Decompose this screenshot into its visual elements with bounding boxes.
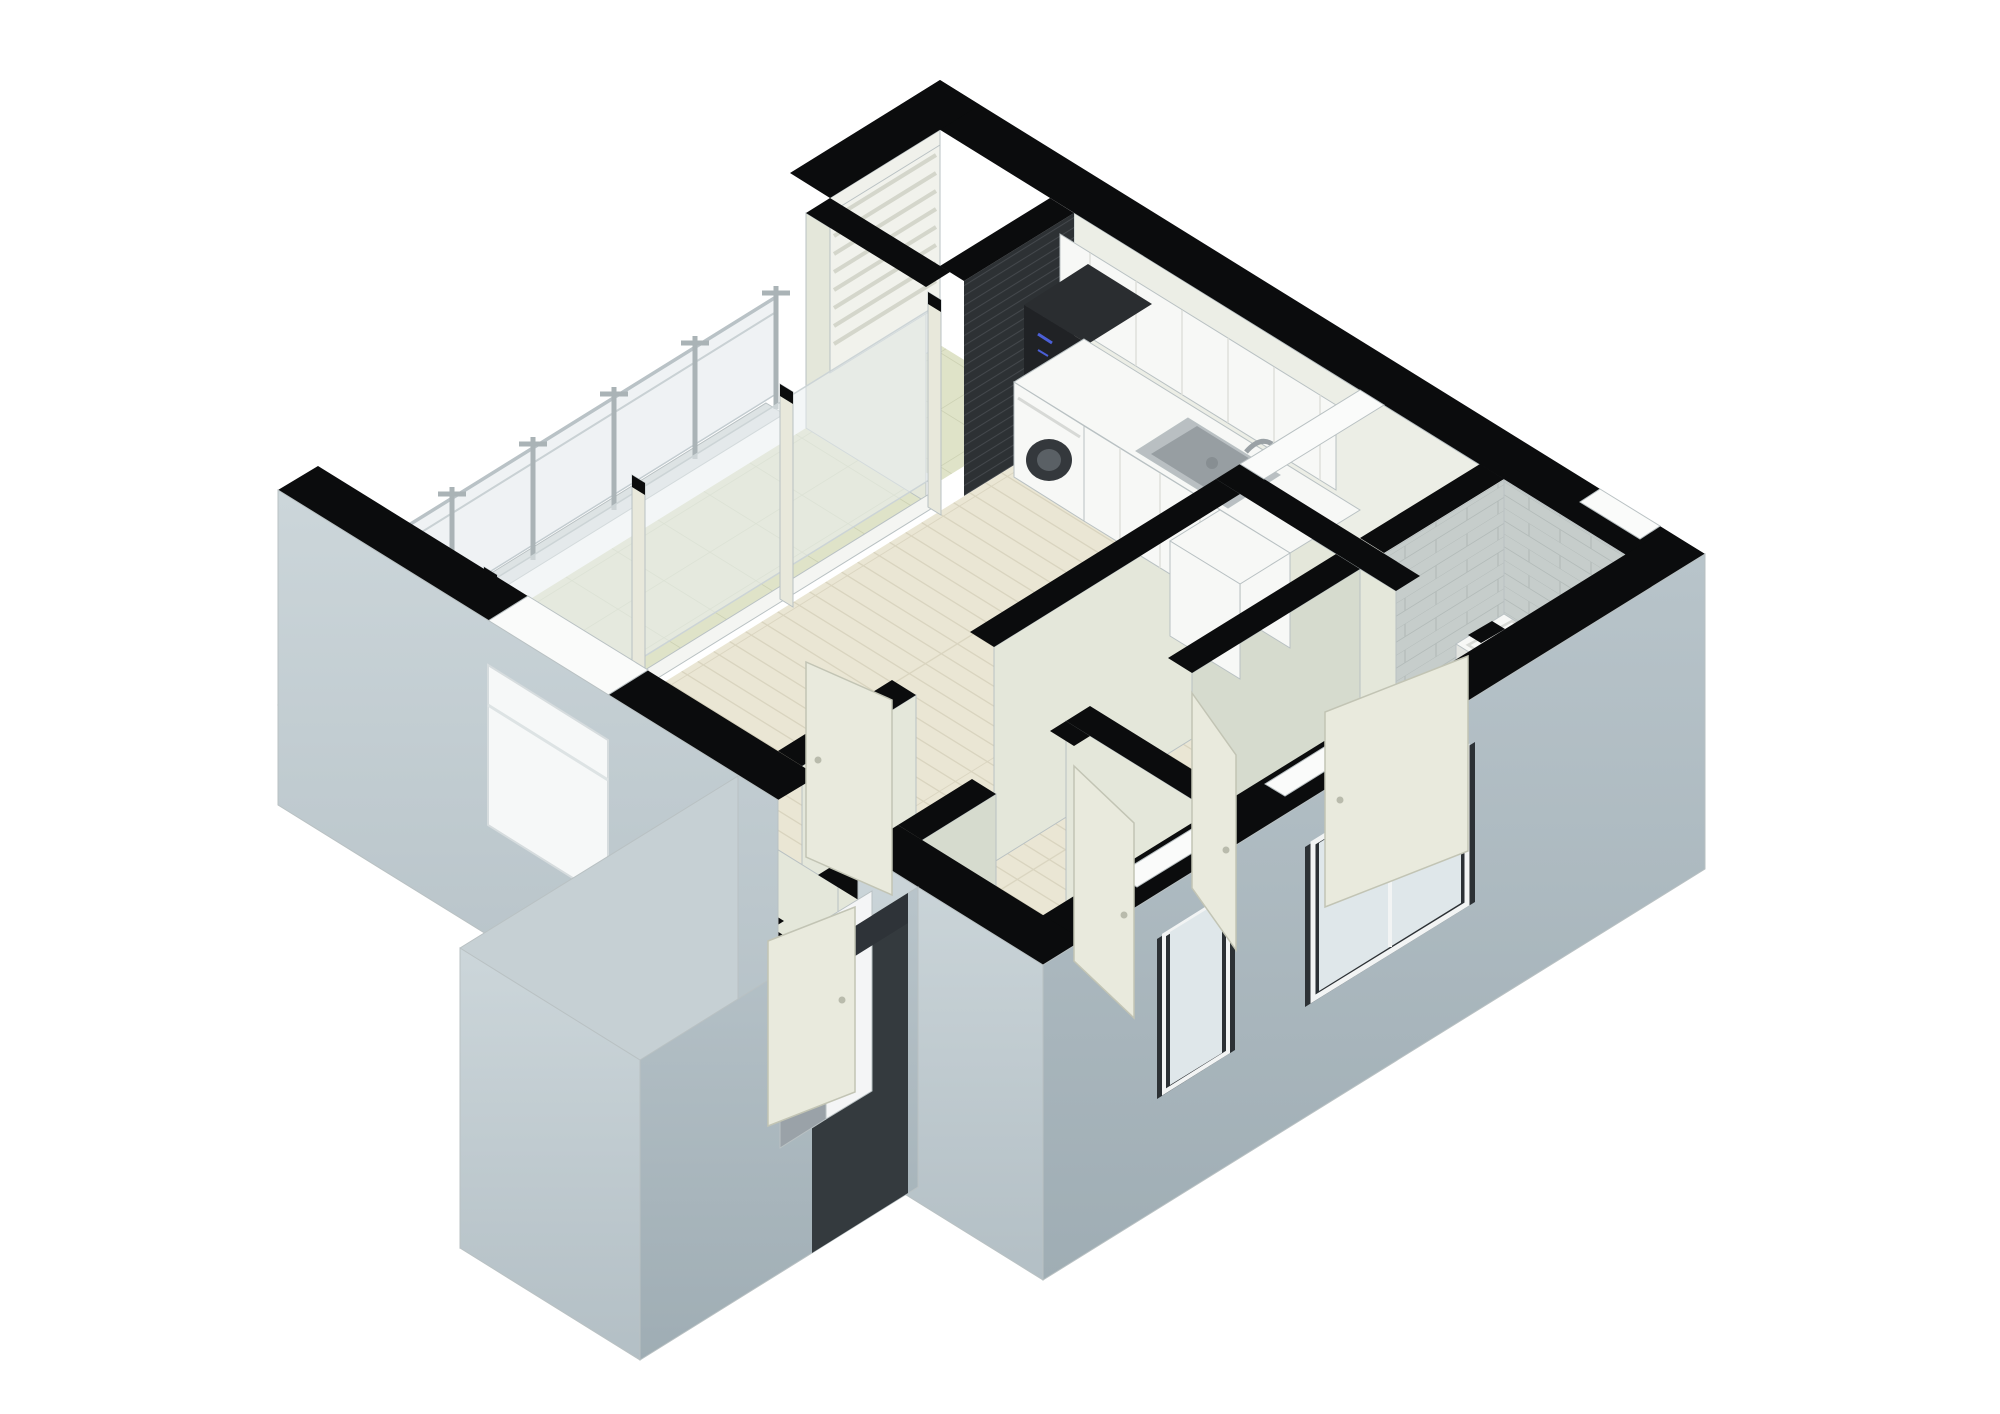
sink-drain — [1206, 457, 1218, 469]
door-bathroom2 — [768, 907, 855, 1126]
door-leaf — [768, 907, 855, 1126]
door-living-hall — [806, 662, 892, 895]
door-handle — [1337, 797, 1344, 804]
door-leaf — [806, 662, 892, 895]
door-handle — [1223, 847, 1230, 854]
window-bedroom2-glass — [1170, 900, 1222, 1085]
apartment-3d-floorplan — [0, 0, 2000, 1414]
door-handle — [839, 997, 846, 1004]
washing-machine-door-glass — [1037, 449, 1061, 471]
sliding-post — [780, 384, 793, 607]
sliding-post — [928, 292, 941, 515]
door-handle — [815, 757, 822, 764]
floorplan-render-canvas — [0, 0, 2000, 1414]
door-handle — [1121, 912, 1128, 919]
